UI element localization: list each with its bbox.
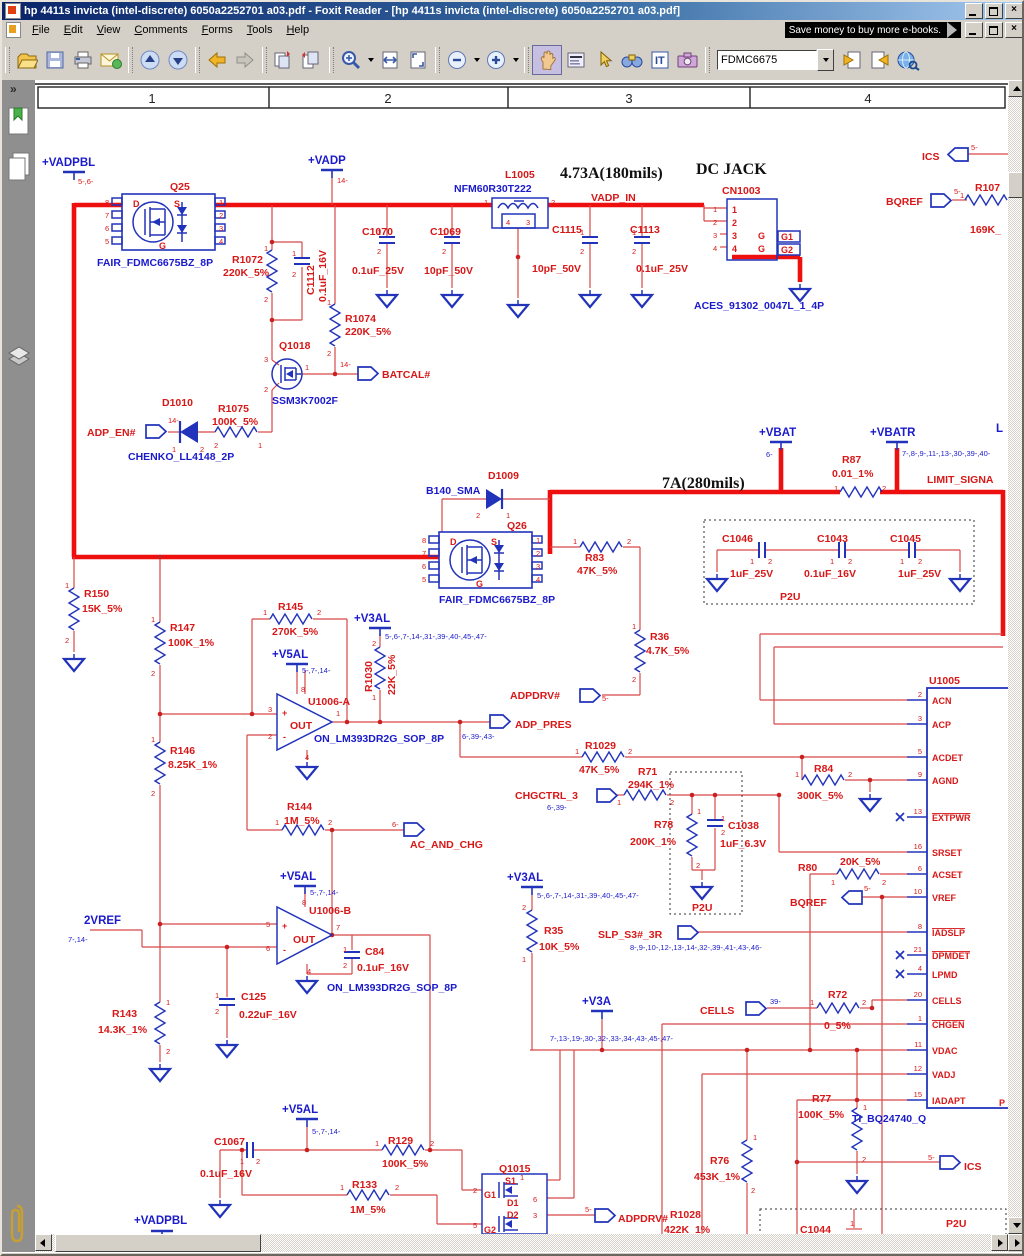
ruler-col-3: 3 bbox=[625, 91, 632, 106]
divider-resistors: 1 R150 15K_5% 2 1 R147 100K_1% 2 1 R146 … bbox=[65, 581, 218, 798]
net-v5al-c: +V5AL bbox=[282, 1104, 318, 1116]
svg-text:S: S bbox=[174, 199, 180, 209]
mdi-minimize-button[interactable] bbox=[965, 22, 983, 38]
svg-text:2: 2 bbox=[430, 1139, 434, 1148]
svg-text:3: 3 bbox=[526, 218, 530, 227]
svg-text:C84: C84 bbox=[365, 946, 384, 958]
svg-text:300K_5%: 300K_5% bbox=[797, 790, 844, 802]
hand-tool-button[interactable] bbox=[532, 45, 562, 75]
svg-text:G2: G2 bbox=[781, 245, 793, 255]
svg-text:2: 2 bbox=[264, 295, 268, 304]
port-chgctrl: CHGCTRL_3 bbox=[515, 790, 578, 802]
zoom-out-button[interactable] bbox=[443, 46, 471, 74]
search-dropdown[interactable] bbox=[817, 49, 834, 71]
svg-text:2: 2 bbox=[882, 878, 886, 887]
menu-help[interactable]: Help bbox=[279, 22, 316, 38]
svg-text:453K_1%: 453K_1% bbox=[694, 1171, 741, 1183]
svg-text:1: 1 bbox=[575, 747, 579, 756]
svg-text:L1005: L1005 bbox=[505, 169, 535, 181]
svg-text:D1: D1 bbox=[507, 1198, 519, 1208]
svg-text:NFM60R30T222: NFM60R30T222 bbox=[454, 183, 532, 195]
svg-text:5: 5 bbox=[918, 747, 922, 756]
svg-text:1: 1 bbox=[442, 228, 446, 237]
svg-text:10pF_50V: 10pF_50V bbox=[532, 263, 581, 275]
toolbar-grip[interactable] bbox=[262, 47, 267, 73]
svg-text:6: 6 bbox=[266, 944, 270, 953]
horizontal-scroll-thumb[interactable] bbox=[55, 1234, 261, 1252]
dc-jack-label: DC JACK bbox=[696, 161, 767, 178]
svg-text:5-: 5- bbox=[585, 1205, 592, 1214]
svg-text:-: - bbox=[283, 732, 286, 742]
svg-text:3: 3 bbox=[713, 231, 717, 240]
ruler-col-2: 2 bbox=[384, 91, 391, 106]
svg-text:4: 4 bbox=[918, 964, 922, 973]
svg-text:1: 1 bbox=[697, 807, 701, 816]
svg-text:D: D bbox=[133, 199, 140, 209]
find-next-icon bbox=[868, 49, 892, 71]
net-vbat: +VBAT bbox=[759, 427, 796, 439]
svg-text:3: 3 bbox=[264, 355, 268, 364]
vertical-scrollbar[interactable] bbox=[1008, 80, 1024, 1234]
svg-text:1: 1 bbox=[960, 191, 964, 200]
svg-text:1: 1 bbox=[219, 198, 223, 207]
svg-text:1: 1 bbox=[632, 228, 636, 237]
svg-text:5-,7-,14-: 5-,7-,14- bbox=[312, 1127, 341, 1136]
net-vadpbl-b: +VADPBL bbox=[134, 1215, 187, 1227]
svg-text:OUT: OUT bbox=[290, 720, 313, 732]
navigation-sidebar: » bbox=[2, 80, 36, 1252]
go-forward-button[interactable] bbox=[231, 46, 259, 74]
svg-text:G1: G1 bbox=[484, 1190, 496, 1200]
previous-page-button[interactable] bbox=[136, 46, 164, 74]
svg-text:D1010: D1010 bbox=[162, 397, 193, 409]
svg-text:+: + bbox=[282, 921, 287, 931]
find-previous-button[interactable] bbox=[838, 46, 866, 74]
svg-text:5: 5 bbox=[473, 1221, 477, 1230]
svg-text:100K_5%: 100K_5% bbox=[798, 1109, 845, 1121]
port-ics-top: ICS bbox=[922, 151, 940, 163]
svg-text:4: 4 bbox=[506, 218, 510, 227]
svg-text:R87: R87 bbox=[842, 454, 861, 466]
p2u-label-1: P2U bbox=[780, 591, 800, 603]
current-note-2: 7A(280mils) bbox=[662, 475, 745, 492]
svg-text:C1043: C1043 bbox=[817, 533, 848, 545]
svg-text:2: 2 bbox=[214, 441, 218, 450]
svg-text:3: 3 bbox=[536, 562, 540, 571]
document-page[interactable]: 1 2 3 4 bbox=[35, 80, 1008, 1234]
svg-text:21: 21 bbox=[914, 945, 922, 954]
svg-text:G2: G2 bbox=[484, 1225, 496, 1234]
save-floppy-icon bbox=[44, 49, 66, 71]
svg-text:R80: R80 bbox=[798, 862, 817, 874]
svg-text:U1006-B: U1006-B bbox=[309, 905, 351, 917]
vertical-scroll-thumb[interactable] bbox=[1008, 172, 1024, 198]
svg-text:U1006-A: U1006-A bbox=[308, 696, 350, 708]
next-page-icon bbox=[167, 49, 189, 71]
port-ics-bottom: ICS bbox=[964, 1161, 982, 1173]
svg-text:0.1uF_16V: 0.1uF_16V bbox=[200, 1168, 252, 1180]
current-note-1: 4.73A(180mils) bbox=[560, 165, 663, 182]
svg-text:6: 6 bbox=[918, 864, 922, 873]
svg-text:ACSET: ACSET bbox=[932, 870, 963, 880]
net-v3al-a: +V3AL bbox=[354, 613, 390, 625]
ground-symbols bbox=[64, 284, 970, 1217]
svg-text:9: 9 bbox=[918, 770, 922, 779]
pages-panel-button[interactable] bbox=[6, 151, 31, 188]
svg-text:5-,6-,7-,14-,31-,39-,40-,45-,4: 5-,6-,7-,14-,31-,39-,40-,45-,47- bbox=[537, 891, 639, 900]
print-button[interactable] bbox=[69, 46, 97, 74]
svg-text:2: 2 bbox=[918, 557, 922, 566]
svg-text:1: 1 bbox=[506, 511, 510, 520]
ad-banner-text: Save money to buy more e-books. bbox=[789, 25, 947, 36]
binoculars-icon bbox=[620, 49, 644, 71]
svg-text:G: G bbox=[758, 231, 765, 241]
svg-text:S: S bbox=[491, 537, 497, 547]
svg-text:6: 6 bbox=[533, 1195, 537, 1204]
svg-text:220K_5%: 220K_5% bbox=[223, 267, 270, 279]
svg-text:1: 1 bbox=[305, 363, 309, 372]
svg-text:2: 2 bbox=[768, 557, 772, 566]
copy-pages-down-button[interactable] bbox=[270, 46, 298, 74]
svg-text:1: 1 bbox=[520, 1173, 524, 1182]
svg-text:S1: S1 bbox=[505, 1176, 516, 1186]
toolbar-grip[interactable] bbox=[329, 47, 334, 73]
select-annotation-button[interactable] bbox=[562, 46, 590, 74]
svg-text:1: 1 bbox=[580, 228, 584, 237]
svg-text:2: 2 bbox=[696, 861, 700, 870]
svg-text:1: 1 bbox=[340, 1183, 344, 1192]
fit-width-icon bbox=[379, 49, 401, 71]
svg-text:2: 2 bbox=[713, 218, 717, 227]
svg-text:2: 2 bbox=[670, 798, 674, 807]
pages-icon bbox=[6, 151, 32, 183]
svg-text:Q26: Q26 bbox=[507, 520, 527, 532]
open-button[interactable] bbox=[13, 46, 41, 74]
sidebar-expand-icon[interactable]: » bbox=[10, 82, 35, 96]
svg-text:B140_SMA: B140_SMA bbox=[426, 485, 481, 497]
svg-text:FAIR_FDMC6675BZ_8P: FAIR_FDMC6675BZ_8P bbox=[97, 257, 213, 269]
svg-text:IT: IT bbox=[655, 55, 665, 67]
svg-text:D1009: D1009 bbox=[488, 470, 519, 482]
svg-text:1: 1 bbox=[372, 693, 376, 702]
svg-text:ACN: ACN bbox=[932, 696, 952, 706]
svg-text:R133: R133 bbox=[352, 1179, 377, 1191]
l1005-inductor: L1005 NFM60R30T222 1 2 4 3 bbox=[454, 169, 555, 228]
net-v5al-a: +V5AL bbox=[272, 649, 308, 661]
svg-text:1uF_25V: 1uF_25V bbox=[730, 568, 773, 580]
svg-text:R1028: R1028 bbox=[670, 1209, 701, 1221]
svg-text:R1029: R1029 bbox=[585, 740, 616, 752]
port-batcal: BATCAL# bbox=[382, 369, 430, 381]
menu-forms[interactable]: Forms bbox=[195, 22, 240, 38]
svg-text:C1046: C1046 bbox=[722, 533, 753, 545]
minimize-button[interactable] bbox=[965, 3, 983, 19]
forward-arrow-icon bbox=[234, 49, 256, 71]
previous-page-icon bbox=[139, 49, 161, 71]
close-button[interactable]: × bbox=[1005, 3, 1023, 19]
zoom-tool-dropdown[interactable] bbox=[365, 47, 376, 73]
copy-pages-up-button[interactable] bbox=[298, 46, 326, 74]
restore-button[interactable] bbox=[985, 3, 1003, 19]
save-button[interactable] bbox=[41, 46, 69, 74]
svg-text:2: 2 bbox=[862, 998, 866, 1007]
svg-text:4: 4 bbox=[307, 967, 311, 976]
svg-text:2: 2 bbox=[721, 828, 725, 837]
menu-comments[interactable]: Comments bbox=[127, 22, 194, 38]
svg-text:-: - bbox=[283, 945, 286, 955]
svg-text:1: 1 bbox=[522, 955, 526, 964]
menu-tools[interactable]: Tools bbox=[240, 22, 280, 38]
svg-text:C1112: C1112 bbox=[305, 265, 317, 295]
svg-text:5-,6-,7-,14-,31-,39-,40-,45-,4: 5-,6-,7-,14-,31-,39-,40-,45-,47- bbox=[385, 632, 487, 641]
ruler-col-4: 4 bbox=[864, 91, 871, 106]
svg-text:1uF_25V: 1uF_25V bbox=[898, 568, 941, 580]
svg-text:1: 1 bbox=[240, 1157, 244, 1166]
port-ac-and-chg: AC_AND_CHG bbox=[410, 839, 483, 851]
port-adpdrv-mid: ADPDRV# bbox=[510, 690, 560, 702]
bookmarks-panel-button[interactable] bbox=[6, 106, 31, 141]
toolbar-grip[interactable] bbox=[705, 47, 710, 73]
svg-text:2: 2 bbox=[395, 1183, 399, 1192]
svg-text:294K_1%: 294K_1% bbox=[628, 779, 675, 791]
svg-text:2: 2 bbox=[551, 198, 555, 207]
svg-text:5-,7-,14-: 5-,7-,14- bbox=[302, 666, 331, 675]
scroll-right-corner-button[interactable] bbox=[1008, 1234, 1024, 1251]
svg-text:5-: 5- bbox=[928, 1153, 935, 1162]
u1006b-comparator: R144 1 1M_5% 2 6- AC_AND_CHG 5 + 6 - 8 U… bbox=[98, 801, 483, 1056]
zoom-tool-button[interactable] bbox=[337, 46, 365, 74]
svg-text:2: 2 bbox=[377, 247, 381, 256]
search-input[interactable] bbox=[717, 50, 817, 70]
svg-text:2: 2 bbox=[848, 770, 852, 779]
svg-text:1: 1 bbox=[918, 1014, 922, 1023]
mdi-restore-button[interactable] bbox=[985, 22, 1003, 38]
svg-text:12: 12 bbox=[914, 1064, 922, 1073]
p2u-cap-box: C1046 1 2 1uF_25V C1043 1 2 0.1uF_16V C1… bbox=[704, 520, 974, 604]
svg-text:1: 1 bbox=[327, 298, 331, 307]
svg-text:7: 7 bbox=[105, 211, 109, 220]
svg-text:20: 20 bbox=[914, 990, 922, 999]
svg-text:1: 1 bbox=[732, 205, 737, 215]
svg-text:1: 1 bbox=[65, 581, 69, 590]
page-column-ruler: 1 2 3 4 bbox=[35, 84, 1008, 108]
svg-text:2: 2 bbox=[848, 557, 852, 566]
svg-text:2: 2 bbox=[862, 1155, 866, 1164]
svg-text:2: 2 bbox=[732, 218, 737, 228]
toolbar-grip[interactable] bbox=[195, 47, 200, 73]
svg-text:1: 1 bbox=[850, 1219, 854, 1228]
layers-icon bbox=[6, 343, 33, 373]
r87-sense: R87 0.01_1% 1 2 bbox=[832, 454, 886, 497]
svg-text:OUT: OUT bbox=[293, 934, 316, 946]
port-adp-pres: ADP_PRES bbox=[515, 719, 572, 731]
search-web-button[interactable] bbox=[894, 46, 922, 74]
menu-file[interactable]: File bbox=[25, 22, 57, 38]
app-icon bbox=[5, 3, 21, 19]
svg-text:10: 10 bbox=[914, 887, 922, 896]
horizontal-scrollbar[interactable] bbox=[35, 1234, 1008, 1252]
mdi-close-button[interactable]: × bbox=[1005, 22, 1023, 38]
svg-text:5: 5 bbox=[105, 237, 109, 246]
port-adp-en: ADP_EN# bbox=[87, 427, 136, 439]
find-next-button[interactable] bbox=[866, 46, 894, 74]
svg-text:Q25: Q25 bbox=[170, 181, 190, 193]
svg-text:1: 1 bbox=[151, 615, 155, 624]
svg-text:0.1uF_25V: 0.1uF_25V bbox=[636, 263, 688, 275]
svg-text:15: 15 bbox=[914, 1090, 922, 1099]
svg-text:1uF_6.3V: 1uF_6.3V bbox=[720, 838, 766, 850]
select-tool-button[interactable] bbox=[590, 46, 618, 74]
snapshot-button[interactable] bbox=[674, 46, 702, 74]
svg-text:2: 2 bbox=[65, 636, 69, 645]
svg-text:R1072: R1072 bbox=[232, 254, 263, 266]
svg-text:1: 1 bbox=[275, 818, 279, 827]
back-arrow-icon bbox=[206, 49, 228, 71]
svg-text:R107: R107 bbox=[975, 182, 1000, 194]
svg-text:2: 2 bbox=[151, 789, 155, 798]
svg-text:39-: 39- bbox=[770, 997, 781, 1006]
layers-panel-button[interactable] bbox=[6, 343, 31, 378]
svg-text:U1005: U1005 bbox=[929, 675, 960, 687]
svg-text:7: 7 bbox=[336, 923, 340, 932]
email-button[interactable] bbox=[97, 46, 125, 74]
svg-text:100K_1%: 100K_1% bbox=[168, 637, 215, 649]
svg-text:ACES_91302_0047L_1_4P: ACES_91302_0047L_1_4P bbox=[694, 300, 824, 312]
svg-text:4: 4 bbox=[305, 753, 309, 762]
svg-text:C1115: C1115 bbox=[552, 224, 582, 236]
svg-text:2: 2 bbox=[292, 270, 296, 279]
schematic-canvas: 1 2 3 4 bbox=[35, 80, 1008, 1234]
svg-text:100K_5%: 100K_5% bbox=[382, 1158, 429, 1170]
attachments-panel-button[interactable] bbox=[6, 1202, 28, 1251]
svg-text:SSM3K7002F: SSM3K7002F bbox=[272, 395, 339, 407]
svg-text:8.25K_1%: 8.25K_1% bbox=[168, 759, 218, 771]
zoom-out-dropdown[interactable] bbox=[471, 47, 482, 73]
svg-text:100K_5%: 100K_5% bbox=[212, 416, 259, 428]
toolbar-grip[interactable] bbox=[435, 47, 440, 73]
svg-text:R1030: R1030 bbox=[363, 661, 375, 692]
svg-text:ACP: ACP bbox=[932, 720, 951, 730]
svg-text:6: 6 bbox=[422, 562, 426, 571]
p2u-label-2: P2U bbox=[692, 902, 712, 914]
scroll-right-button[interactable] bbox=[991, 1234, 1008, 1251]
svg-text:2: 2 bbox=[536, 549, 540, 558]
svg-text:2: 2 bbox=[882, 484, 886, 493]
svg-text:R146: R146 bbox=[170, 745, 195, 757]
svg-text:0.1uF_25V: 0.1uF_25V bbox=[352, 265, 404, 277]
svg-text:8: 8 bbox=[105, 198, 109, 207]
net-2vref: 2VREF bbox=[84, 915, 121, 927]
svg-text:14-: 14- bbox=[168, 416, 179, 425]
svg-text:8: 8 bbox=[422, 536, 426, 545]
printer-icon bbox=[72, 49, 94, 71]
cn1003-dc-jack: CN1003 1 2 3 4 1 2 3 4 G G G1 G2 ACES_91… bbox=[694, 185, 824, 312]
svg-text:7-,14-: 7-,14- bbox=[68, 935, 88, 944]
menu-view[interactable]: View bbox=[90, 22, 128, 38]
svg-text:1: 1 bbox=[151, 735, 155, 744]
camera-icon bbox=[676, 49, 700, 71]
svg-text:R147: R147 bbox=[170, 622, 195, 634]
svg-text:R76: R76 bbox=[710, 1155, 729, 1167]
svg-text:13: 13 bbox=[914, 807, 922, 816]
svg-text:R35: R35 bbox=[544, 925, 563, 937]
scroll-down-button[interactable] bbox=[1008, 1217, 1024, 1234]
toolbar-grip[interactable] bbox=[5, 47, 10, 73]
svg-text:47K_5%: 47K_5% bbox=[577, 565, 618, 577]
svg-text:Q1018: Q1018 bbox=[279, 340, 311, 352]
fit-page-button[interactable] bbox=[404, 46, 432, 74]
fit-width-button[interactable] bbox=[376, 46, 404, 74]
svg-text:2: 2 bbox=[632, 247, 636, 256]
svg-text:CN1003: CN1003 bbox=[722, 185, 761, 197]
svg-text:2: 2 bbox=[627, 537, 631, 546]
select-text-button[interactable]: IT bbox=[646, 46, 674, 74]
toolbar-grip[interactable] bbox=[128, 47, 133, 73]
menu-bar: File Edit View Comments Forms Tools Help… bbox=[2, 20, 1024, 41]
bookmarks-icon bbox=[6, 106, 31, 136]
svg-text:6-: 6- bbox=[766, 450, 773, 459]
svg-text:4.7K_5%: 4.7K_5% bbox=[646, 645, 690, 657]
svg-text:IADSLP: IADSLP bbox=[932, 928, 965, 938]
svg-text:270K_5%: 270K_5% bbox=[272, 626, 319, 638]
pages-down-arrow-icon bbox=[272, 49, 296, 71]
zoom-in-dropdown[interactable] bbox=[510, 47, 521, 73]
svg-text:6-,39-: 6-,39- bbox=[547, 803, 567, 812]
find-button[interactable] bbox=[618, 46, 646, 74]
svg-text:DPMDET: DPMDET bbox=[932, 951, 971, 961]
svg-text:5-: 5- bbox=[602, 694, 609, 703]
ad-banner[interactable]: Save money to buy more e-books. bbox=[785, 22, 961, 38]
mid-right-cluster: R80 20K_5% 1 2 BQREF 5- SLP_S3#_3R 8-,9-… bbox=[522, 856, 886, 1032]
svg-text:2: 2 bbox=[219, 211, 223, 220]
svg-text:1M_5%: 1M_5% bbox=[350, 1204, 386, 1216]
svg-text:0.22uF_16V: 0.22uF_16V bbox=[239, 1009, 297, 1021]
svg-text:7-,8-,9-,11-,13-,30-,39-,40-: 7-,8-,9-,11-,13-,30-,39-,40- bbox=[902, 449, 991, 458]
svg-text:1: 1 bbox=[834, 484, 838, 493]
next-page-button[interactable] bbox=[164, 46, 192, 74]
svg-text:14-: 14- bbox=[340, 360, 351, 369]
svg-text:1: 1 bbox=[258, 441, 262, 450]
search-globe-icon bbox=[896, 49, 920, 71]
menu-edit[interactable]: Edit bbox=[57, 22, 90, 38]
svg-text:2: 2 bbox=[215, 1007, 219, 1016]
svg-text:422K_1%: 422K_1% bbox=[664, 1224, 711, 1234]
svg-text:1: 1 bbox=[830, 557, 834, 566]
toolbar-grip[interactable] bbox=[524, 47, 529, 73]
svg-text:1: 1 bbox=[863, 1103, 867, 1112]
port-slp-s3: SLP_S3#_3R bbox=[598, 929, 663, 941]
svg-text:22K_5%: 22K_5% bbox=[386, 654, 398, 695]
u1005-charger-ic: U1005 TI_BQ24740_Q P 2 ACN 3 ACP 5 ACDET… bbox=[852, 675, 1008, 1125]
scroll-left-button[interactable] bbox=[35, 1234, 52, 1251]
zoom-in-button[interactable] bbox=[482, 46, 510, 74]
svg-text:10pF_50V: 10pF_50V bbox=[424, 265, 473, 277]
svg-text:ON_LM393DR2G_SOP_8P: ON_LM393DR2G_SOP_8P bbox=[327, 982, 457, 994]
svg-text:1: 1 bbox=[215, 991, 219, 1000]
svg-text:2: 2 bbox=[632, 675, 636, 684]
svg-text:VREF: VREF bbox=[932, 893, 957, 903]
open-folder-icon bbox=[16, 49, 38, 71]
svg-text:1: 1 bbox=[713, 205, 717, 214]
go-back-button[interactable] bbox=[203, 46, 231, 74]
status-bar bbox=[2, 1252, 1024, 1256]
foxit-reader-window: hp 4411s invicta (intel-discrete) 6050a2… bbox=[0, 0, 1024, 1256]
svg-text:6-: 6- bbox=[392, 820, 399, 829]
scroll-up-button[interactable] bbox=[1008, 80, 1024, 97]
svg-text:2: 2 bbox=[473, 1186, 477, 1195]
svg-text:2: 2 bbox=[372, 639, 376, 648]
svg-text:4: 4 bbox=[713, 244, 717, 253]
